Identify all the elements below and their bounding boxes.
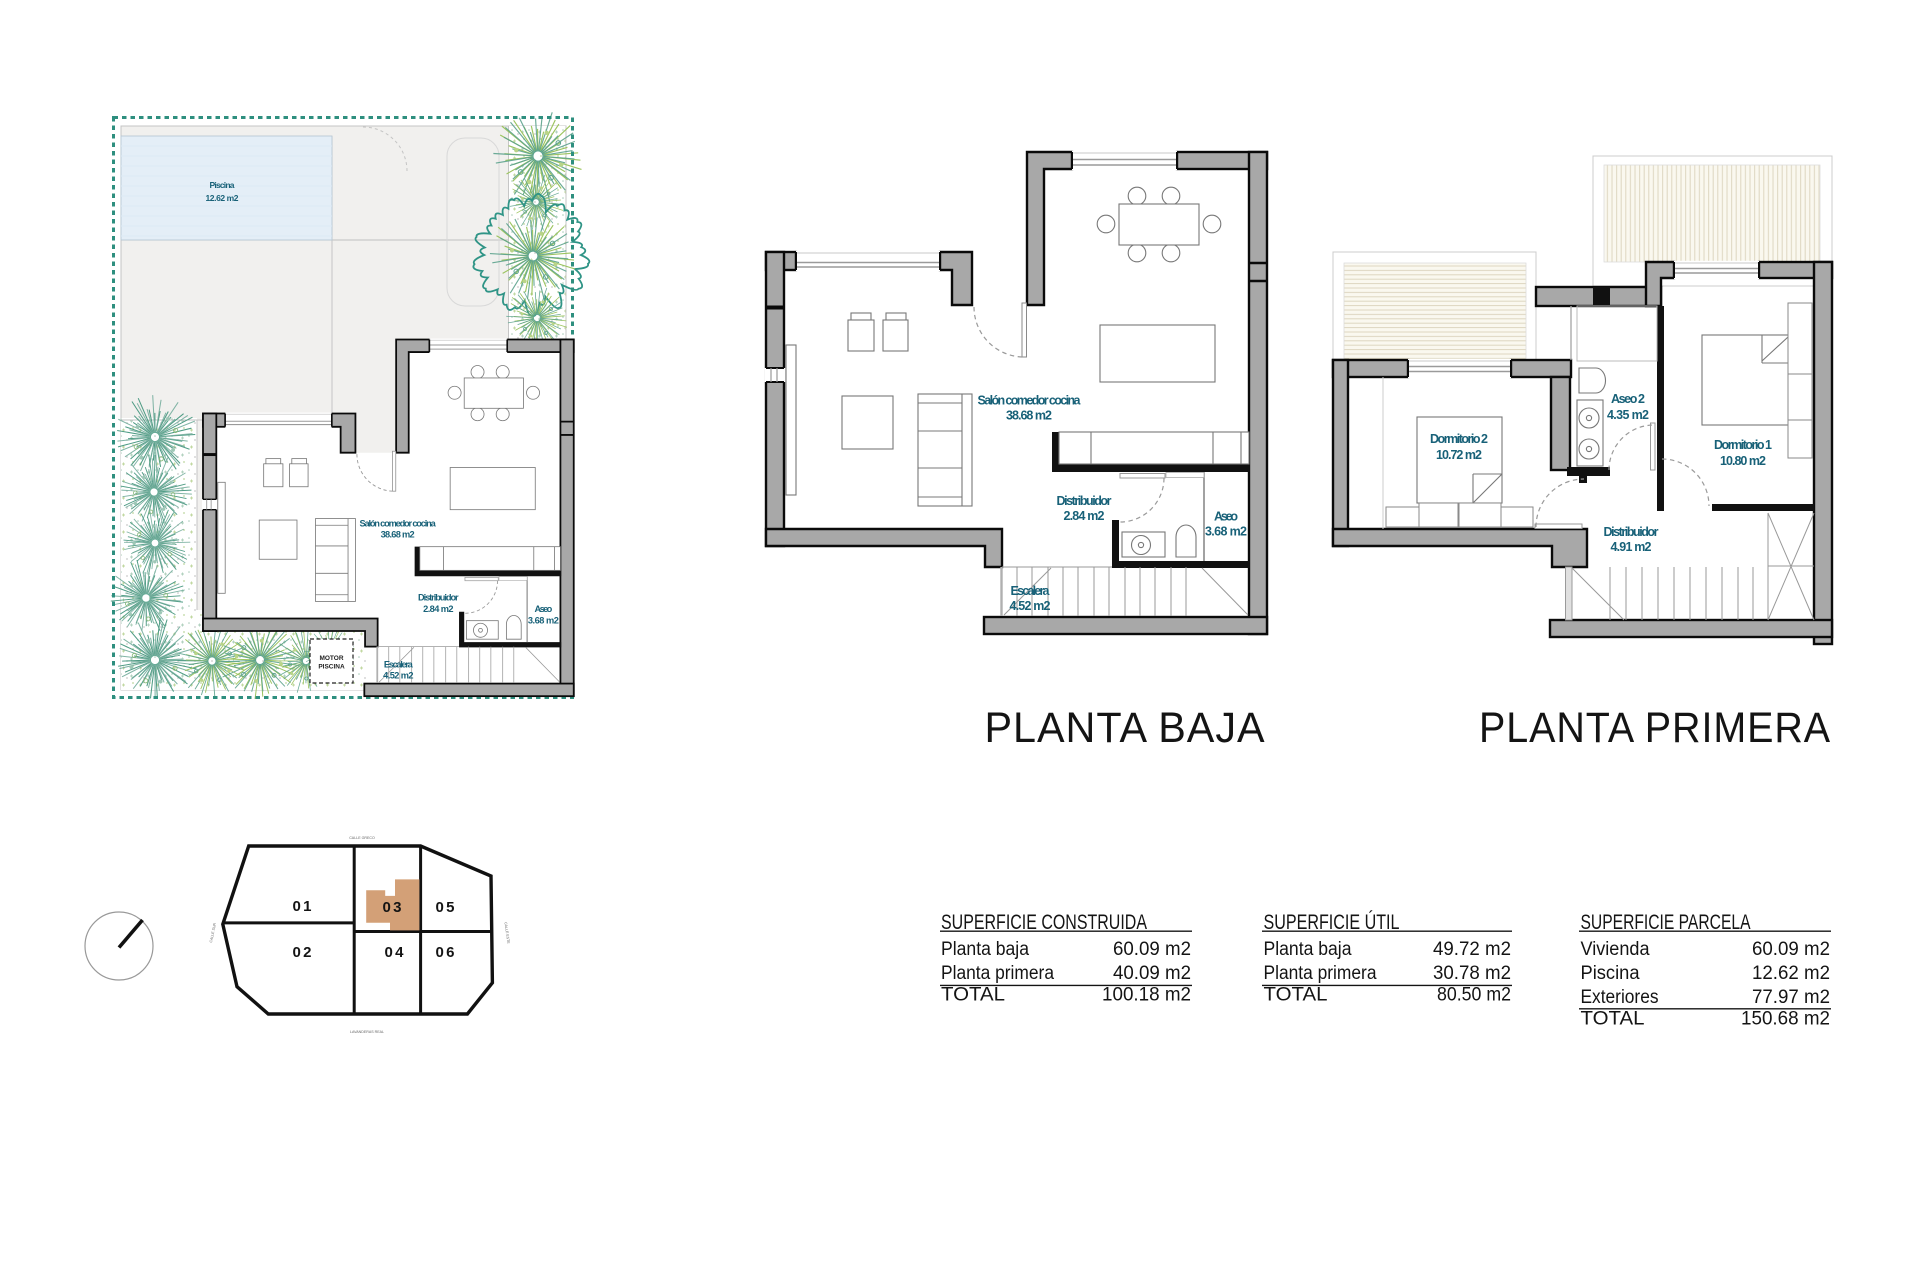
svg-text:CALLE SUR: CALLE SUR xyxy=(209,922,217,943)
svg-text:100.18 m2: 100.18 m2 xyxy=(1102,985,1191,1006)
svg-text:TOTAL: TOTAL xyxy=(1264,985,1328,1006)
svg-text:PISCINA: PISCINA xyxy=(318,664,345,671)
svg-text:Planta primera: Planta primera xyxy=(941,963,1054,984)
svg-text:Planta baja: Planta baja xyxy=(941,939,1029,960)
svg-text:MOTOR: MOTOR xyxy=(319,655,343,662)
svg-text:150.68 m2: 150.68 m2 xyxy=(1741,1009,1830,1030)
svg-text:80.50 m2: 80.50 m2 xyxy=(1437,985,1511,1006)
svg-text:CALLE GRECO: CALLE GRECO xyxy=(349,836,375,840)
svg-text:TOTAL: TOTAL xyxy=(1581,1009,1645,1030)
svg-text:Distribuidor: Distribuidor xyxy=(1604,525,1659,539)
svg-text:30.78 m2: 30.78 m2 xyxy=(1433,963,1511,984)
svg-text:TOTAL: TOTAL xyxy=(941,985,1005,1006)
svg-text:40.09 m2: 40.09 m2 xyxy=(1113,963,1191,984)
svg-text:PLANTA PRIMERA: PLANTA PRIMERA xyxy=(1479,704,1831,752)
svg-text:60.09 m2: 60.09 m2 xyxy=(1752,939,1830,960)
svg-text:77.97 m2: 77.97 m2 xyxy=(1752,987,1830,1008)
svg-text:Vivienda: Vivienda xyxy=(1581,939,1650,960)
svg-text:Piscina: Piscina xyxy=(210,180,235,190)
svg-text:4.91 m2: 4.91 m2 xyxy=(1611,540,1652,554)
svg-text:12.62 m2: 12.62 m2 xyxy=(206,193,239,203)
svg-text:49.72 m2: 49.72 m2 xyxy=(1433,939,1511,960)
svg-text:Dormitorio 1: Dormitorio 1 xyxy=(1714,438,1772,452)
svg-text:LAVANDERAS REAL: LAVANDERAS REAL xyxy=(350,1030,384,1034)
svg-text:10.72 m2: 10.72 m2 xyxy=(1436,448,1482,462)
svg-text:PLANTA BAJA: PLANTA BAJA xyxy=(985,704,1266,752)
svg-text:Dormitorio 2: Dormitorio 2 xyxy=(1430,432,1488,446)
svg-text:Planta primera: Planta primera xyxy=(1264,963,1377,984)
svg-text:60.09 m2: 60.09 m2 xyxy=(1113,939,1191,960)
svg-text:Piscina: Piscina xyxy=(1581,963,1640,984)
svg-text:04: 04 xyxy=(385,944,405,961)
svg-text:Planta baja: Planta baja xyxy=(1264,939,1352,960)
svg-text:Aseo 2: Aseo 2 xyxy=(1611,392,1645,406)
svg-text:4.35 m2: 4.35 m2 xyxy=(1607,408,1649,422)
svg-text:Exteriores: Exteriores xyxy=(1581,987,1659,1008)
svg-text:CALLE ESTE: CALLE ESTE xyxy=(503,922,510,945)
svg-text:12.62 m2: 12.62 m2 xyxy=(1752,963,1830,984)
svg-text:10.80 m2: 10.80 m2 xyxy=(1720,454,1766,468)
